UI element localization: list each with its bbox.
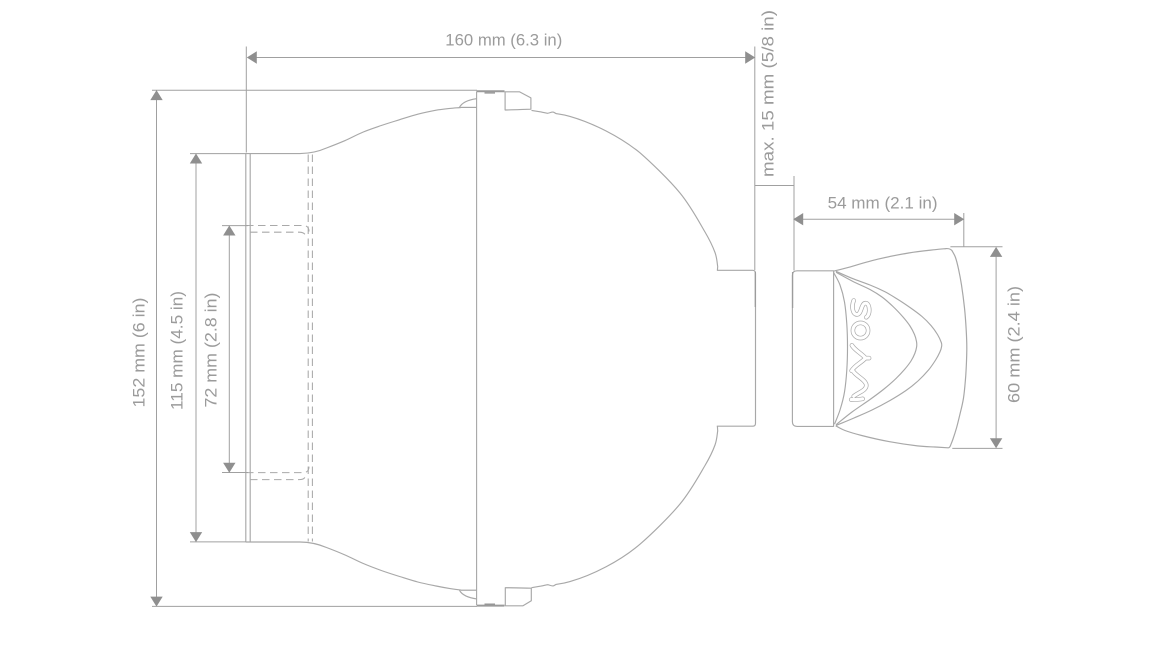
svg-text:54 mm (2.1 in): 54 mm (2.1 in) <box>828 194 938 212</box>
svg-text:72 mm (2.8 in): 72 mm (2.8 in) <box>203 293 221 408</box>
svg-text:115 mm (4.5 in): 115 mm (4.5 in) <box>169 291 187 410</box>
svg-text:max. 15 mm (5/8 in): max. 15 mm (5/8 in) <box>760 10 778 177</box>
svg-text:160 mm (6.3 in): 160 mm (6.3 in) <box>445 32 562 50</box>
svg-text:60 mm (2.4 in): 60 mm (2.4 in) <box>1006 286 1024 403</box>
svg-text:152 mm (6 in): 152 mm (6 in) <box>131 298 149 408</box>
